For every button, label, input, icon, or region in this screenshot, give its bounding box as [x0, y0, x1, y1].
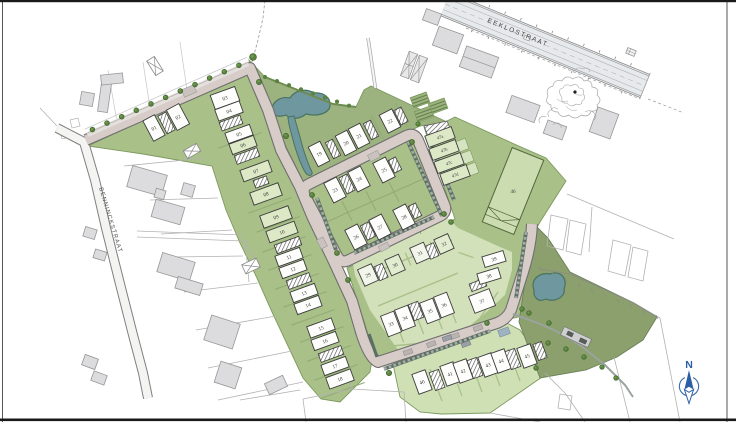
svg-text:N: N	[685, 359, 693, 371]
svg-text:46: 46	[510, 189, 516, 195]
